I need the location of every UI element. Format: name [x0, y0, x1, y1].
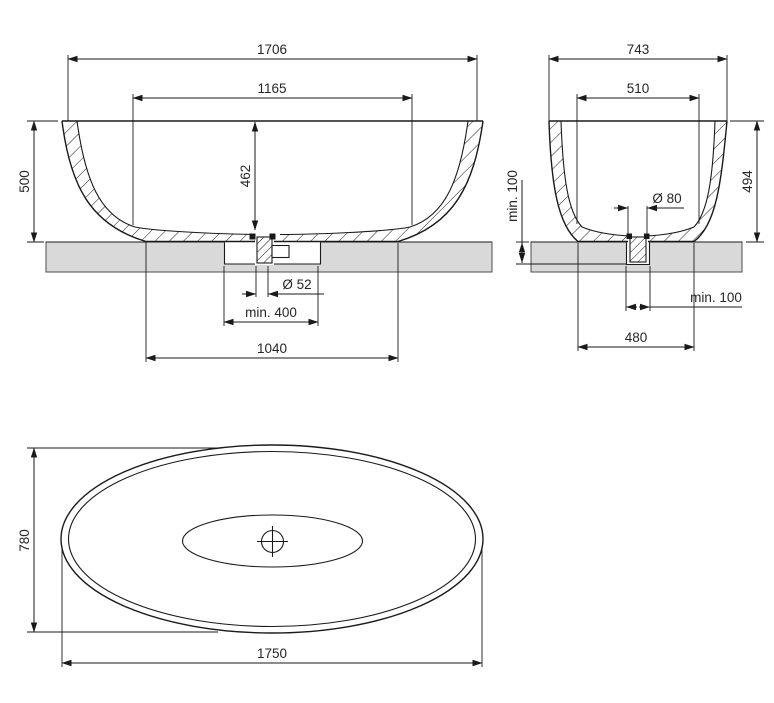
front-footprint-width-label: 1040	[257, 341, 287, 356]
side-dim-drain-diameter: Ø 80	[614, 191, 684, 238]
front-dim-interior-depth: 462	[238, 122, 255, 230]
side-dim-height: 494	[730, 121, 764, 242]
side-interior-width-label: 510	[627, 81, 650, 96]
side-drain-diameter-label: Ø 80	[652, 191, 681, 206]
side-overall-width-label: 743	[627, 42, 650, 57]
front-interior-width-label: 1165	[257, 81, 286, 96]
side-footprint-width-label: 480	[625, 330, 648, 345]
side-dim-recess-width: min. 100	[626, 266, 742, 311]
top-overall-length-label: 1750	[257, 646, 287, 661]
side-recess-width-label: min. 100	[690, 290, 742, 305]
top-view: 780 1750	[17, 445, 483, 667]
front-interior-depth-label: 462	[238, 165, 253, 188]
front-overall-width-label: 1706	[257, 42, 287, 57]
front-height-label: 500	[17, 170, 32, 193]
side-recess-depth-label: min. 100	[505, 170, 520, 222]
front-view: 1706 1165 500 462 Ø 52	[17, 42, 492, 362]
top-drain-symbol	[257, 526, 288, 557]
top-overall-depth-label: 780	[17, 529, 32, 552]
front-dim-interior-width: 1165	[133, 81, 412, 225]
side-height-label: 494	[740, 170, 755, 193]
side-tub-outline	[549, 121, 727, 242]
front-recess-width-label: min. 400	[245, 305, 297, 320]
front-drain-diameter-label: Ø 52	[282, 277, 311, 292]
side-view: 743 510 494 min. 100	[505, 42, 764, 351]
front-dim-height: 500	[17, 121, 58, 242]
front-tub-outline	[62, 121, 483, 242]
side-drain-pipe	[627, 230, 650, 264]
technical-drawing-page: 1706 1165 500 462 Ø 52	[0, 0, 774, 703]
front-dim-recess-width: min. 400	[224, 266, 318, 326]
drawing-canvas: 1706 1165 500 462 Ø 52	[0, 0, 774, 703]
